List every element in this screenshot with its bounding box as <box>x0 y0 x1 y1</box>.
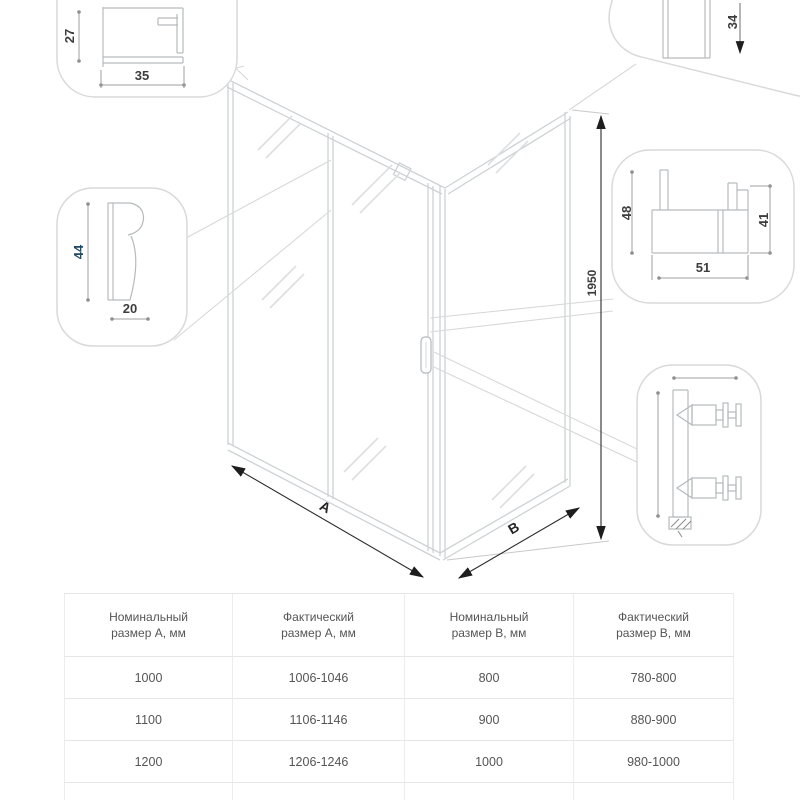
table-cell: 1000 <box>405 741 574 783</box>
dim-1950: 1950 <box>585 269 599 296</box>
col-header-nominal-b: Номинальный размер В, мм <box>405 593 574 657</box>
dim-51: 51 <box>696 260 710 275</box>
table-cell: 1000 <box>64 657 233 699</box>
table-cell: 980-1000 <box>574 741 734 783</box>
col-header-nominal-a: Номинальный размер А, мм <box>64 593 233 657</box>
table-cell: 800 <box>405 657 574 699</box>
col-header-actual-a: Фактический размер А, мм <box>233 593 405 657</box>
dim-41: 41 <box>756 213 771 227</box>
dim-20: 20 <box>123 301 137 316</box>
col-header-line: Фактический <box>283 609 354 625</box>
size-table: Номинальный размер А, мм Фактический раз… <box>64 593 734 800</box>
table-cell: 880-900 <box>574 699 734 741</box>
table-cell: 780-800 <box>574 657 734 699</box>
handle-bubble <box>637 365 761 545</box>
dim-35: 35 <box>135 68 149 83</box>
door-handle <box>421 337 431 373</box>
table-cell: 1100 <box>64 699 233 741</box>
table-cell: 1106-1146 <box>233 699 405 741</box>
table-cell: 1200 <box>64 741 233 783</box>
table-cell-empty <box>574 783 734 800</box>
frame-profile-bubble <box>57 188 187 346</box>
table-cell: 900 <box>405 699 574 741</box>
table-cell-empty <box>64 783 233 800</box>
dim-44: 44 <box>71 244 86 259</box>
dim-27: 27 <box>62 29 77 43</box>
dim-label-b: B <box>505 518 522 537</box>
table-cell: 1006-1046 <box>233 657 405 699</box>
table-cell-empty <box>405 783 574 800</box>
col-header-line: размер А, мм <box>111 625 186 641</box>
col-header-line: Номинальный <box>109 609 188 625</box>
technical-drawing: 27 35 44 20 34 <box>0 0 800 593</box>
col-header-line: размер В, мм <box>616 625 691 641</box>
table-cell: 1206-1246 <box>233 741 405 783</box>
col-header-actual-b: Фактический размер В, мм <box>574 593 734 657</box>
col-header-line: Номинальный <box>450 609 529 625</box>
dim-line-b <box>459 508 579 578</box>
col-header-line: размер В, мм <box>452 625 527 641</box>
col-header-line: Фактический <box>618 609 689 625</box>
top-profile-bubble <box>601 0 800 105</box>
dim-48: 48 <box>619 206 634 220</box>
table-cell-empty <box>233 783 405 800</box>
shower-enclosure-spec-sheet: 27 35 44 20 34 <box>0 0 800 800</box>
dim-label-a: A <box>317 497 333 516</box>
dim-34: 34 <box>725 14 740 29</box>
col-header-line: размер А, мм <box>281 625 356 641</box>
